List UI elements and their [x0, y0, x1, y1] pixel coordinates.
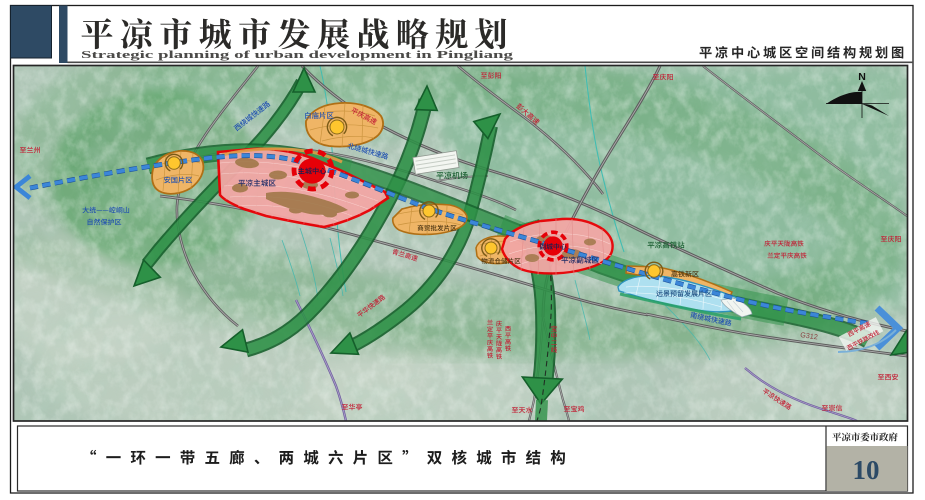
svg-text:10: 10: [853, 455, 880, 485]
svg-text:Strategic planning of urban de: Strategic planning of urban development …: [81, 49, 514, 61]
